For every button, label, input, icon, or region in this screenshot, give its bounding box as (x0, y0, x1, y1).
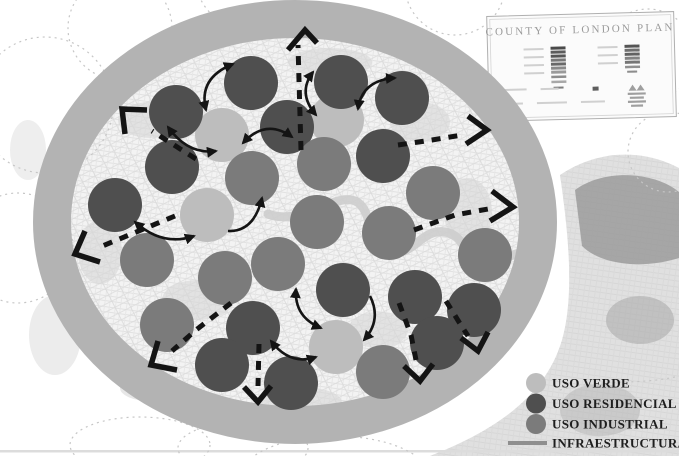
use-node-industrial (290, 195, 344, 249)
use-node-industrial (198, 251, 252, 305)
expansion-arrow-shaft (258, 344, 259, 386)
use-node-residencial (264, 356, 318, 410)
use-node-verde (309, 320, 363, 374)
legend-label-residencial: USO RESIDENCIAL (552, 396, 677, 411)
use-node-residencial (356, 129, 410, 183)
legend-swatch-verde-circle (526, 373, 546, 393)
use-node-residencial (410, 316, 464, 370)
use-node-industrial (251, 237, 305, 291)
legend-label-infraestructura: INFRAESTRUCTURA (552, 436, 679, 451)
use-node-industrial (356, 345, 410, 399)
use-node-residencial (88, 178, 142, 232)
use-node-industrial (406, 166, 460, 220)
inset-swatch-column-left (550, 46, 566, 88)
use-node-industrial (458, 228, 512, 282)
use-node-residencial (388, 270, 442, 324)
london-plan-diagram: COUNTY OF LONDON PLAN (0, 0, 679, 456)
legend-label-industrial: USO INDUSTRIAL (552, 417, 668, 432)
legend-swatch-residencial-circle (526, 394, 546, 414)
use-node-verde (180, 188, 234, 242)
legend-item-verde: USO VERDE (526, 373, 630, 393)
use-node-industrial (297, 137, 351, 191)
use-node-residencial (195, 338, 249, 392)
use-node-industrial (140, 298, 194, 352)
use-node-industrial (362, 206, 416, 260)
diagram-canvas: COUNTY OF LONDON PLAN (0, 0, 679, 456)
use-node-industrial (120, 233, 174, 287)
use-node-residencial (316, 263, 370, 317)
legend-label-verde: USO VERDE (552, 376, 630, 391)
legend-swatch-industrial-circle (526, 414, 546, 434)
use-node-industrial (225, 151, 279, 205)
use-node-residencial (149, 85, 203, 139)
